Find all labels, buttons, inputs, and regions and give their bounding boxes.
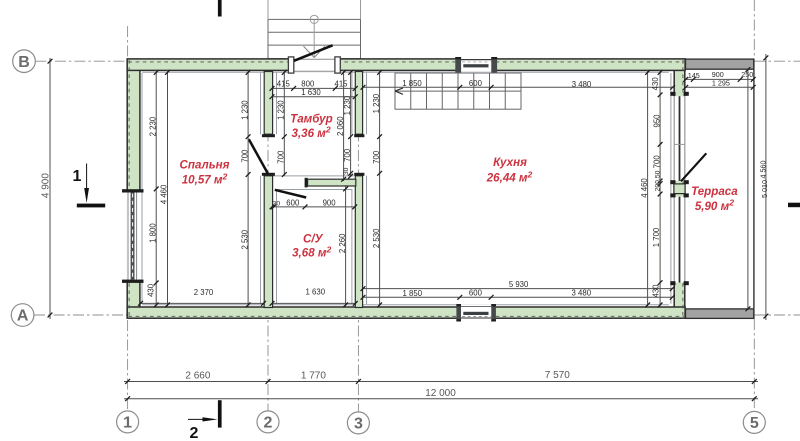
svg-text:700: 700: [277, 150, 286, 164]
svg-text:2 370: 2 370: [194, 288, 214, 297]
svg-text:900: 900: [323, 199, 337, 208]
svg-text:415: 415: [334, 79, 348, 88]
svg-text:1 800: 1 800: [148, 223, 157, 243]
svg-text:Тамбур: Тамбур: [290, 113, 333, 126]
svg-text:Кухня: Кухня: [493, 156, 527, 169]
svg-text:415: 415: [277, 79, 291, 88]
svg-text:145: 145: [688, 71, 700, 80]
svg-text:1: 1: [73, 168, 82, 185]
svg-text:950: 950: [652, 114, 661, 128]
svg-text:5: 5: [750, 415, 759, 432]
svg-text:1 630: 1 630: [301, 88, 321, 97]
svg-text:430: 430: [651, 77, 660, 91]
svg-text:600: 600: [469, 289, 483, 298]
svg-text:800: 800: [301, 79, 315, 88]
svg-text:5 930: 5 930: [509, 280, 529, 289]
svg-text:1 230: 1 230: [240, 100, 249, 120]
svg-text:3 480: 3 480: [572, 289, 592, 298]
svg-text:1 230: 1 230: [372, 93, 381, 113]
svg-text:1 850: 1 850: [402, 79, 422, 88]
svg-text:2 260: 2 260: [338, 233, 347, 253]
svg-text:26,44 м2: 26,44 м2: [486, 169, 533, 184]
svg-text:2 230: 2 230: [148, 116, 157, 136]
svg-text:700: 700: [343, 148, 352, 162]
svg-text:4 460: 4 460: [160, 184, 169, 204]
svg-text:30: 30: [343, 167, 350, 175]
svg-text:4 460: 4 460: [640, 178, 649, 198]
svg-text:250: 250: [741, 70, 753, 79]
svg-text:А: А: [17, 308, 29, 325]
svg-text:700: 700: [652, 155, 661, 169]
svg-text:Спальня: Спальня: [180, 159, 230, 172]
svg-text:3 480: 3 480: [572, 80, 592, 89]
svg-text:2 660: 2 660: [185, 370, 210, 381]
svg-text:1 230: 1 230: [277, 100, 286, 120]
svg-text:200,50: 200,50: [654, 170, 661, 191]
svg-text:2: 2: [190, 425, 199, 441]
svg-text:3: 3: [354, 416, 363, 433]
svg-text:1 295: 1 295: [712, 78, 730, 87]
svg-text:30: 30: [273, 201, 281, 208]
svg-text:700: 700: [372, 150, 381, 164]
svg-text:С/У: С/У: [303, 232, 324, 245]
svg-text:430: 430: [651, 284, 660, 298]
svg-text:4 900: 4 900: [40, 173, 51, 198]
svg-text:430: 430: [146, 283, 155, 297]
svg-text:1 770: 1 770: [301, 370, 326, 381]
svg-text:700: 700: [240, 149, 249, 163]
svg-text:2 060: 2 060: [336, 116, 345, 136]
svg-text:10,57 м2: 10,57 м2: [182, 171, 228, 186]
svg-text:2 530: 2 530: [240, 229, 249, 249]
svg-text:1 700: 1 700: [652, 227, 661, 247]
svg-text:3,68 м2: 3,68 м2: [292, 244, 331, 259]
svg-text:1 850: 1 850: [403, 289, 423, 298]
svg-text:5 010: 5 010: [760, 180, 769, 198]
svg-text:600: 600: [286, 199, 300, 208]
svg-text:Терраса: Терраса: [691, 185, 738, 198]
svg-text:В: В: [18, 54, 30, 71]
svg-text:3,36 м2: 3,36 м2: [292, 125, 331, 140]
svg-text:2 530: 2 530: [372, 228, 381, 248]
svg-text:600: 600: [469, 79, 483, 88]
svg-text:2: 2: [264, 415, 273, 432]
svg-text:1 630: 1 630: [306, 287, 326, 296]
svg-text:5,90 м2: 5,90 м2: [695, 198, 734, 213]
svg-text:1 230: 1 230: [343, 95, 352, 115]
svg-text:7 570: 7 570: [545, 370, 570, 381]
svg-text:12 000: 12 000: [425, 388, 456, 399]
svg-text:1: 1: [123, 415, 132, 432]
